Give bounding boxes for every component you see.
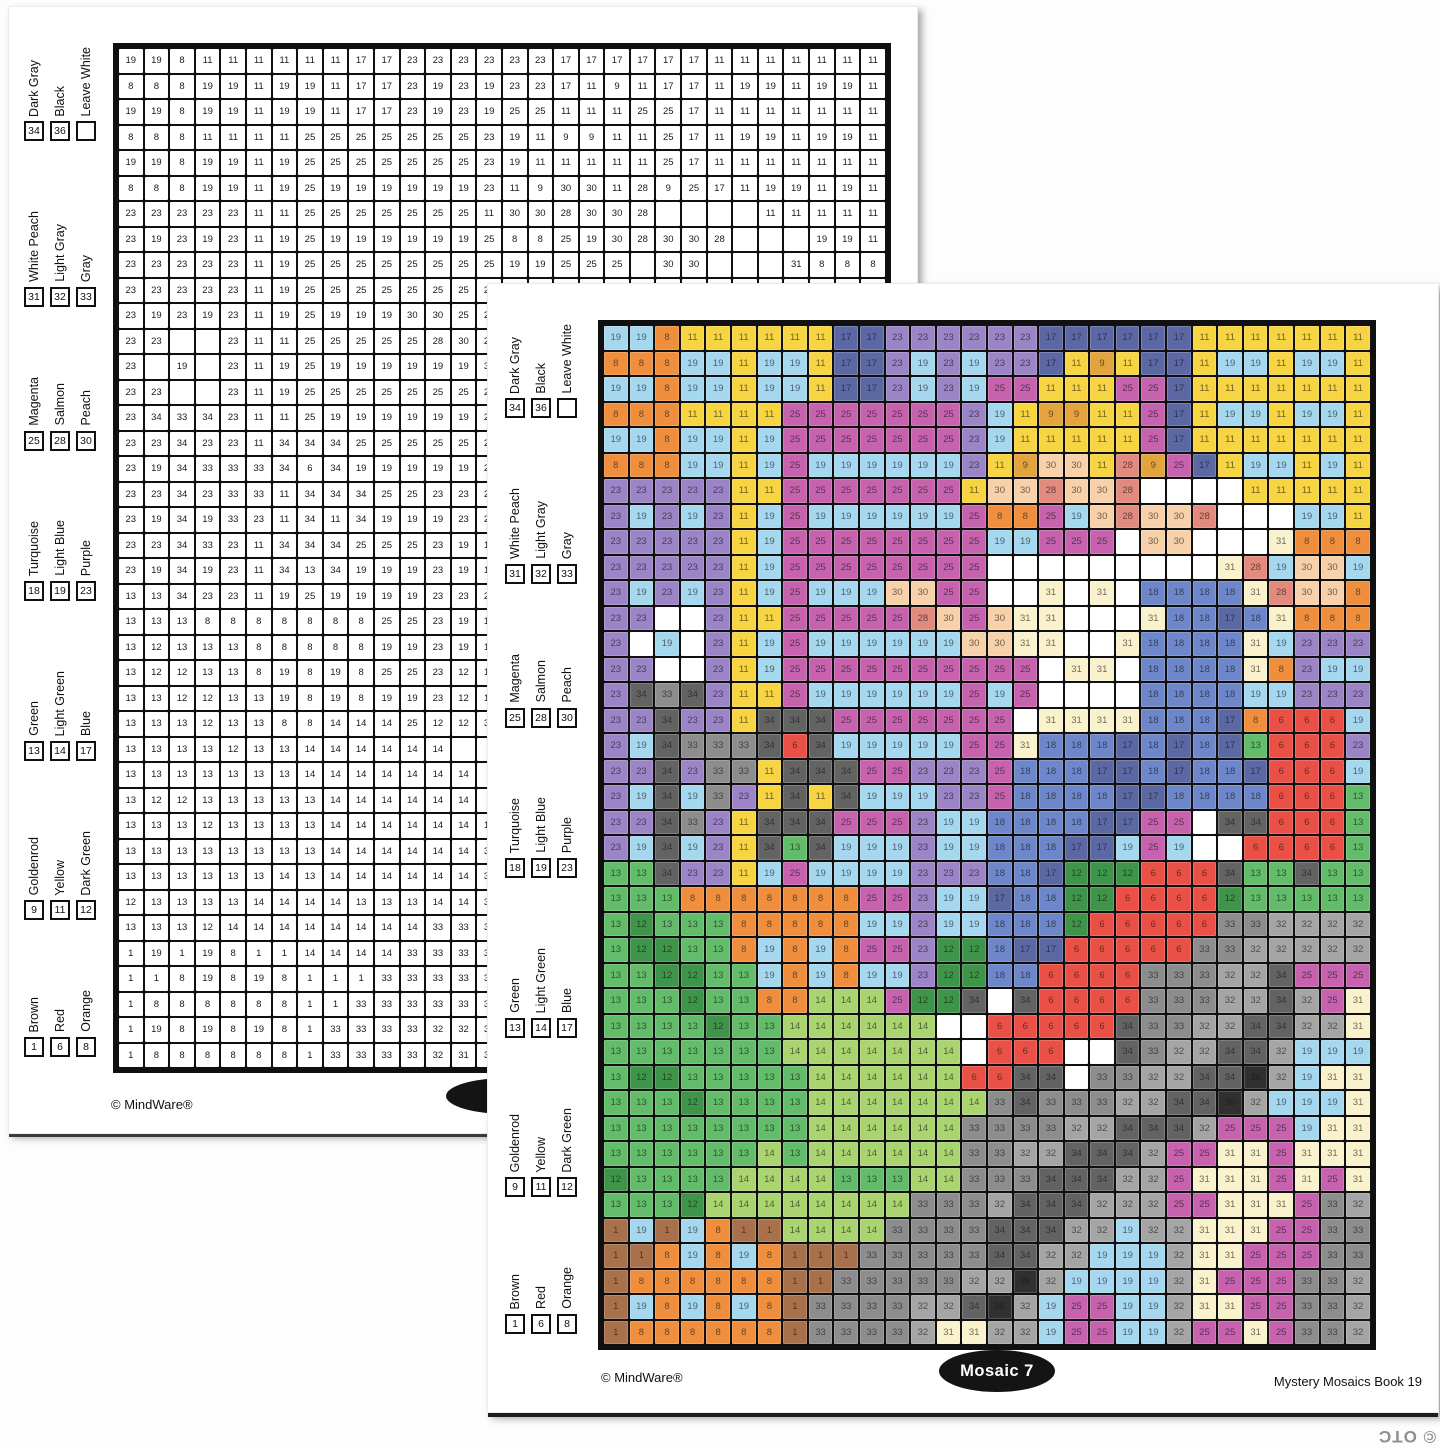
grid-cell: 8 [732,1321,756,1345]
grid-cell: 25 [529,100,553,124]
grid-cell: 32 [1141,1193,1165,1217]
grid-cell: 12 [681,989,705,1013]
legend-label: Salmon [534,660,548,702]
grid-cell: 11 [759,151,783,175]
grid-cell: 25 [1141,377,1165,401]
grid-cell: 19 [1244,352,1268,376]
grid-cell: 25 [962,505,986,529]
grid-cell: 11 [1116,428,1140,452]
grid-cell: 11 [196,49,220,73]
grid-cell: 23 [452,585,476,609]
legend-color-box: 9 [24,900,44,920]
grid-cell: 33 [1321,1321,1345,1345]
grid-cell: 11 [758,683,782,707]
grid-cell: 25 [1295,964,1319,988]
legend-label: Leave White [79,47,93,116]
grid-cell: 8 [655,377,679,401]
legend-color-box: 12 [76,900,96,920]
grid-cell: 36 [1014,1270,1038,1294]
grid-cell: 6 [1193,862,1217,886]
grid-cell: 11 [529,151,553,175]
grid-cell [1116,658,1140,682]
grid-cell: 23 [119,253,143,277]
grid-cell: 34 [809,811,833,835]
grid-cell: 8 [758,1270,782,1294]
grid-cell: 23 [401,49,425,73]
grid-cell: 11 [810,202,834,226]
grid-cell: 17 [1090,760,1114,784]
grid-cell: 19 [834,505,858,529]
grid-cell: 31 [1244,1321,1268,1345]
grid-cell: 33 [732,734,756,758]
grid-cell: 19 [681,352,705,376]
grid-cell: 11 [732,556,756,580]
grid-cell: 11 [1295,326,1319,350]
grid-cell: 33 [1167,964,1191,988]
grid-cell: 19 [937,734,961,758]
grid-cell: 13 [221,763,245,787]
legend-group: Magenta25Salmon28Peach30 [23,377,107,451]
grid-cell: 14 [911,1015,935,1039]
grid-cell: 30 [1321,581,1345,605]
grid-cell: 14 [298,916,322,940]
grid-cell: 8 [196,993,220,1017]
grid-cell: 31 [784,253,808,277]
grid-cell: 1 [783,1321,807,1345]
grid-cell: 19 [758,530,782,554]
grid-cell: 19 [886,836,910,860]
grid-cell: 32 [1346,1295,1370,1319]
grid-cell: 14 [758,1193,782,1217]
grid-cell [1116,530,1140,554]
grid-cell: 8 [349,687,373,711]
grid-cell: 11 [809,352,833,376]
grid-cell: 19 [630,1295,654,1319]
grid-cell: 30 [1167,505,1191,529]
grid-cell: 18 [1039,734,1063,758]
grid-cell: 19 [401,559,425,583]
grid-cell: 18 [1218,760,1242,784]
grid-cell: 31 [1321,1142,1345,1166]
grid-cell: 33 [732,760,756,784]
grid-cell: 31 [1269,530,1293,554]
grid-cell: 8 [1346,581,1370,605]
grid-cell: 19 [196,967,220,991]
grid-cell: 6 [962,1066,986,1090]
grid-cell: 33 [809,1295,833,1319]
grid-cell: 11 [247,355,271,379]
grid-cell: 25 [401,253,425,277]
grid-cell: 8 [119,177,143,201]
grid-cell: 1 [758,1219,782,1243]
grid-cell: 19 [937,913,961,937]
grid-cell: 8 [170,75,194,99]
grid-cell: 13 [783,836,807,860]
grid-cell: 13 [630,1117,654,1141]
grid-cell: 19 [937,632,961,656]
grid-cell: 14 [375,942,399,966]
grid-cell: 33 [1090,1066,1114,1090]
grid-cell: 33 [452,916,476,940]
grid-cell: 8 [604,454,628,478]
grid-cell: 31 [1295,1168,1319,1192]
grid-cell: 33 [834,1321,858,1345]
grid-cell: 14 [298,763,322,787]
grid-cell: 34 [1065,1168,1089,1192]
grid-cell: 36 [988,1295,1012,1319]
legend-color-box: 17 [76,741,96,761]
grid-cell: 13 [196,661,220,685]
legend-color-box [76,121,96,141]
grid-cell [196,355,220,379]
grid-cell: 25 [937,428,961,452]
grid-cell: 17 [1141,326,1165,350]
grid-cell: 8 [247,1044,271,1068]
grid-cell: 34 [988,1219,1012,1243]
grid-cell [682,202,706,226]
legend-entry: Brown1 [23,997,45,1057]
grid-cell: 19 [911,683,935,707]
grid-cell: 23 [145,483,169,507]
grid-cell: 14 [860,989,884,1013]
grid-cell: 14 [221,916,245,940]
grid-cell: 32 [988,1270,1012,1294]
grid-cell: 18 [1014,913,1038,937]
grid-cell: 25 [298,126,322,150]
grid-cell: 34 [170,432,194,456]
grid-cell: 23 [401,100,425,124]
grid-cell: 19 [426,406,450,430]
grid-cell: 32 [1244,989,1268,1013]
grid-cell: 19 [988,683,1012,707]
grid-cell: 19 [196,151,220,175]
grid-cell: 13 [170,916,194,940]
grid-cell: 14 [426,814,450,838]
grid-cell: 14 [834,1040,858,1064]
grid-cell: 19 [1295,505,1319,529]
grid-cell: 13 [1269,887,1293,911]
grid-cell: 23 [196,279,220,303]
grid-cell: 19 [349,177,373,201]
grid-cell: 11 [732,581,756,605]
grid-cell: 25 [911,556,935,580]
grid-cell: 25 [1193,1193,1217,1217]
grid-cell: 25 [783,454,807,478]
grid-cell: 19 [886,964,910,988]
grid-cell: 13 [655,913,679,937]
grid-cell: 25 [988,658,1012,682]
grid-cell: 12 [655,1066,679,1090]
grid-cell: 11 [247,228,271,252]
grid-cell: 32 [1346,938,1370,962]
legend-group: Turquoise18Light Blue19Purple23 [23,520,107,601]
grid-cell: 14 [834,989,858,1013]
grid-cell: 19 [503,126,527,150]
grid-cell: 13 [196,738,220,762]
grid-cell: 14 [273,865,297,889]
grid-cell: 19 [196,228,220,252]
grid-cell: 13 [170,738,194,762]
grid-cell: 19 [962,377,986,401]
grid-cell: 11 [1346,505,1370,529]
grid-cell: 19 [860,734,884,758]
grid-cell: 32 [1141,1142,1165,1166]
grid-cell: 25 [860,938,884,962]
grid-cell: 6 [1141,913,1165,937]
grid-cell: 19 [401,406,425,430]
grid-cell: 19 [375,585,399,609]
grid-cell: 33 [1167,989,1191,1013]
grid-cell: 23 [1295,632,1319,656]
grid-cell: 34 [758,811,782,835]
grid-cell: 11 [631,126,655,150]
grid-cell: 34 [1039,1066,1063,1090]
legend-color-box [557,398,577,418]
grid-cell: 19 [937,505,961,529]
grid-cell: 1 [349,967,373,991]
grid-cell: 11 [247,559,271,583]
grid-cell: 11 [247,279,271,303]
grid-cell [733,228,757,252]
grid-cell: 25 [886,403,910,427]
grid-cell: 12 [1065,887,1089,911]
grid-cell: 25 [1346,964,1370,988]
grid-cell: 23 [1321,632,1345,656]
grid-cell: 14 [349,789,373,813]
grid-cell: 34 [145,406,169,430]
grid-cell: 25 [375,661,399,685]
grid-cell: 19 [349,228,373,252]
grid-cell: 23 [962,428,986,452]
grid-cell: 25 [886,607,910,631]
grid-cell: 19 [758,377,782,401]
grid-cell: 6 [1295,760,1319,784]
grid-cell: 23 [119,304,143,328]
grid-cell: 25 [783,556,807,580]
grid-cell: 11 [1269,479,1293,503]
grid-cell: 11 [605,100,629,124]
grid-cell: 8 [706,1219,730,1243]
grid-cell [170,330,194,354]
grid-cell: 14 [426,789,450,813]
grid-cell: 13 [834,1168,858,1192]
grid-cell: 11 [1269,326,1293,350]
grid-cell: 14 [834,1142,858,1166]
grid-cell: 32 [1090,1219,1114,1243]
grid-cell: 8 [630,403,654,427]
grid-cell: 25 [401,483,425,507]
grid-cell: 25 [860,887,884,911]
mindware-copyright: © MindWare® [111,1097,193,1112]
grid-cell: 19 [630,785,654,809]
grid-cell: 34 [324,457,348,481]
grid-cell: 33 [1167,1015,1191,1039]
grid-cell: 28 [1116,479,1140,503]
grid-cell: 19 [1141,1244,1165,1268]
grid-cell: 11 [1218,326,1242,350]
grid-cell: 9 [529,177,553,201]
legend-color-box: 30 [557,708,577,728]
grid-cell: 12 [119,891,143,915]
legend-color-box: 25 [505,708,525,728]
grid-cell: 19 [604,428,628,452]
grid-cell: 34 [324,559,348,583]
grid-cell [1193,811,1217,835]
grid-cell: 11 [1090,428,1114,452]
grid-cell: 12 [911,989,935,1013]
grid-cell: 6 [1269,785,1293,809]
grid-cell: 14 [886,1040,910,1064]
grid-cell: 11 [708,49,732,73]
grid-cell: 13 [630,964,654,988]
grid-cell: 12 [1090,887,1114,911]
grid-cell: 12 [1116,862,1140,886]
grid-cell: 17 [1065,836,1089,860]
grid-cell: 19 [1116,1244,1140,1268]
grid-cell: 19 [1218,403,1242,427]
grid-cell: 19 [886,913,910,937]
grid-cell: 11 [247,381,271,405]
grid-cell: 13 [221,789,245,813]
grid-cell: 25 [452,151,476,175]
grid-cell: 13 [119,585,143,609]
grid-cell: 11 [1321,326,1345,350]
grid-cell: 34 [1244,811,1268,835]
grid-cell: 19 [401,457,425,481]
grid-cell: 25 [426,202,450,226]
grid-cell: 19 [375,636,399,660]
grid-cell: 31 [1218,1244,1242,1268]
grid-cell: 13 [655,1193,679,1217]
grid-cell: 13 [273,840,297,864]
grid-cell: 18 [1039,913,1063,937]
grid-cell: 6 [298,457,322,481]
grid-cell: 11 [988,454,1012,478]
grid-cell: 25 [324,279,348,303]
grid-cell: 34 [1116,1040,1140,1064]
grid-cell: 17 [682,100,706,124]
grid-cell: 25 [1193,1142,1217,1166]
grid-cell: 12 [452,712,476,736]
grid-cell: 25 [886,938,910,962]
grid-cell [1141,556,1165,580]
legend-entry: Purple23 [75,540,97,601]
grid-cell: 13 [604,1142,628,1166]
grid-cell: 25 [809,479,833,503]
grid-cell: 23 [988,326,1012,350]
grid-cell: 23 [452,100,476,124]
grid-cell: 19 [119,49,143,73]
grid-cell: 11 [1295,479,1319,503]
grid-cell: 19 [145,942,169,966]
grid-cell: 25 [783,505,807,529]
grid-cell: 13 [298,814,322,838]
grid-cell: 23 [962,760,986,784]
grid-cell: 11 [708,151,732,175]
grid-cell: 32 [1218,1015,1242,1039]
grid-cell: 11 [861,75,885,99]
grid-cell: 6 [1039,964,1063,988]
grid-cell: 11 [273,202,297,226]
grid-cell: 23 [503,75,527,99]
grid-cell: 14 [758,1168,782,1192]
grid-cell: 25 [834,709,858,733]
grid-cell: 25 [375,253,399,277]
legend-label: Black [534,363,548,394]
legend-color-box: 34 [505,398,525,418]
grid-cell: 28 [554,202,578,226]
grid-cell: 11 [732,658,756,682]
grid-cell: 32 [1269,1066,1293,1090]
grid-cell: 25 [631,100,655,124]
grid-cell: 18 [1141,760,1165,784]
grid-cell: 32 [426,1018,450,1042]
grid-cell: 11 [1346,454,1370,478]
grid-cell: 19 [886,785,910,809]
grid-cell: 11 [247,126,271,150]
grid-cell: 33 [1346,1244,1370,1268]
grid-cell: 19 [1244,683,1268,707]
legend-entry: Light Blue19 [530,797,552,878]
grid-cell: 32 [937,1295,961,1319]
grid-cell: 25 [962,607,986,631]
grid-cell: 18 [1065,811,1089,835]
grid-cell: 11 [605,177,629,201]
grid-cell: 1 [119,942,143,966]
grid-cell: 13 [196,636,220,660]
grid-cell: 25 [886,709,910,733]
grid-cell: 11 [631,75,655,99]
grid-cell: 13 [630,1193,654,1217]
legend-entry: Yellow11 [530,1137,552,1198]
grid-cell: 13 [273,763,297,787]
grid-cell: 25 [783,658,807,682]
grid-cell: 8 [1346,530,1370,554]
grid-cell: 11 [580,100,604,124]
grid-cell [452,738,476,762]
grid-cell: 11 [783,326,807,350]
grid-cell: 8 [1295,607,1319,631]
grid-cell: 8 [298,712,322,736]
grid-cell: 11 [810,151,834,175]
grid-cell: 32 [426,1044,450,1068]
grid-cell: 8 [170,100,194,124]
grid-cell: 32 [911,1321,935,1345]
grid-cell: 34 [655,862,679,886]
grid-cell: 32 [1167,1040,1191,1064]
grid-cell: 23 [145,381,169,405]
grid-cell: 11 [1039,428,1063,452]
grid-cell: 13 [247,865,271,889]
grid-cell: 17 [1039,938,1063,962]
grid-cell: 34 [758,836,782,860]
grid-cell: 8 [834,887,858,911]
grid-cell: 17 [1167,428,1191,452]
grid-cell: 19 [758,632,782,656]
grid-cell: 14 [809,1193,833,1217]
grid-cell: 17 [1141,352,1165,376]
grid-cell: 23 [1346,683,1370,707]
grid-cell: 23 [1321,683,1345,707]
grid-cell: 19 [221,100,245,124]
grid-cell: 31 [1218,1142,1242,1166]
grid-cell: 6 [783,734,807,758]
grid-cell: 23 [170,304,194,328]
grid-cell: 23 [681,479,705,503]
grid-cell: 33 [911,1244,935,1268]
grid-cell: 31 [937,1321,961,1345]
legend-color-box: 34 [24,121,44,141]
